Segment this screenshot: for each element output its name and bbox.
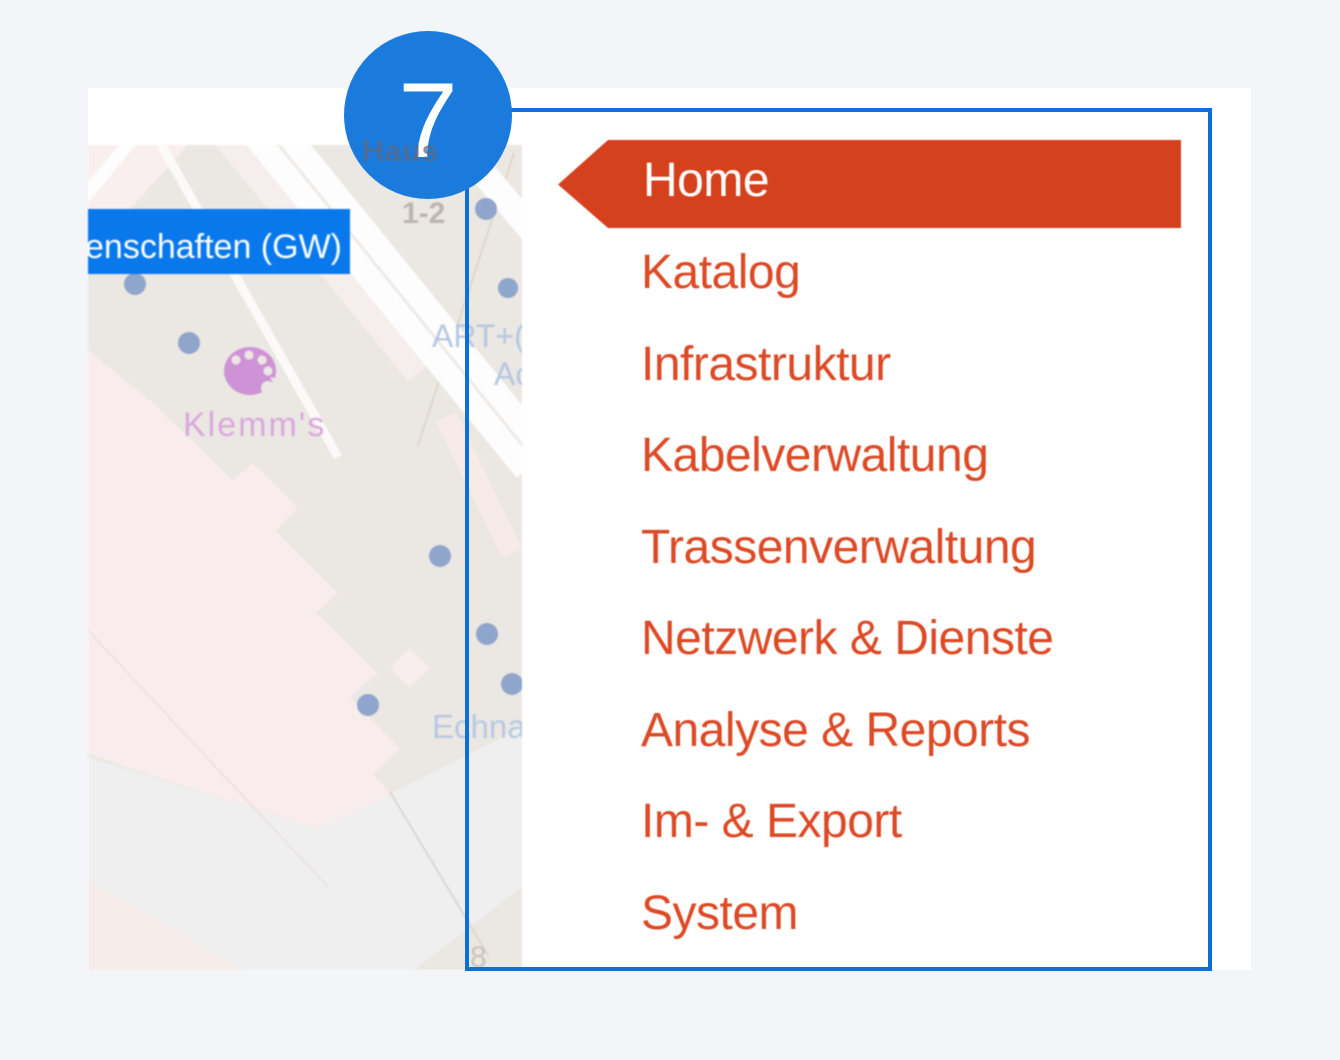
svg-text:enschaften (GW): enschaften (GW) — [88, 228, 342, 266]
svg-text:Klemm's: Klemm's — [183, 406, 326, 444]
